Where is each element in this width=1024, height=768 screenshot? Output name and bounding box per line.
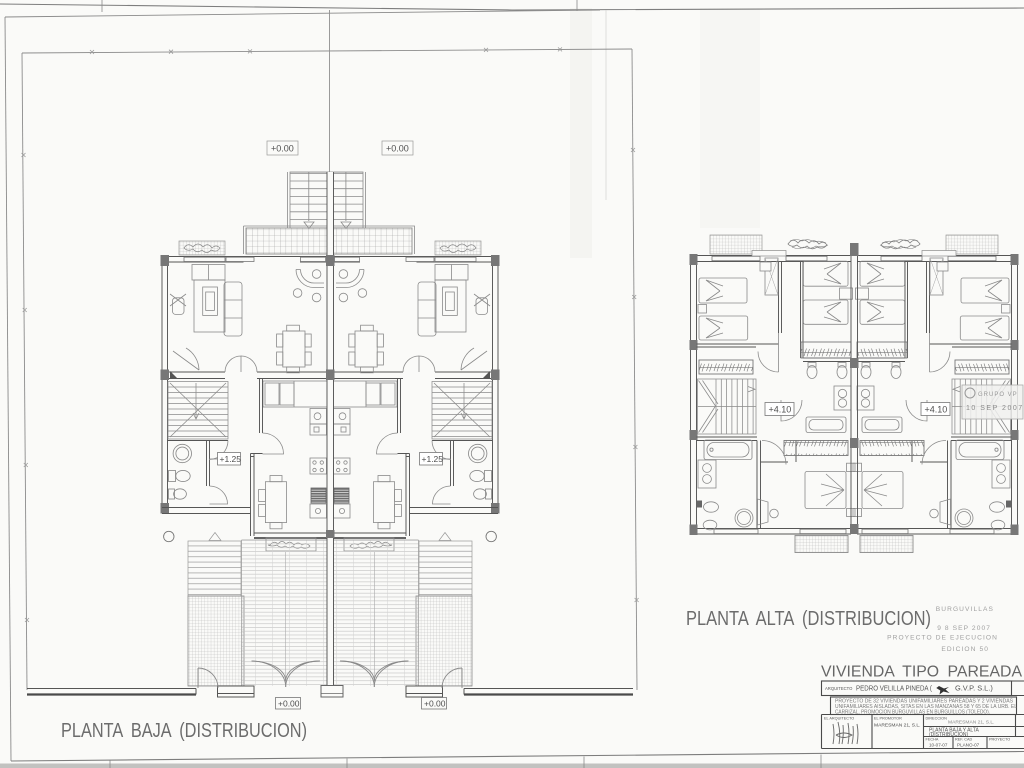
svg-text:+0.00: +0.00 (424, 699, 446, 709)
svg-text:FECHA: FECHA (926, 738, 939, 742)
svg-text:10 SEP 2007: 10 SEP 2007 (966, 405, 1024, 412)
svg-text:PEDRO VELILLA PINEDA (: PEDRO VELILLA PINEDA ( (856, 684, 932, 693)
svg-text:PROYECTO: PROYECTO (989, 738, 1010, 742)
svg-text:EDICION 50: EDICION 50 (941, 646, 989, 653)
svg-text:BURGUVILLAS: BURGUVILLAS (936, 606, 994, 613)
svg-text:+1.25: +1.25 (422, 454, 444, 464)
svg-text:GRUPO VP: GRUPO VP (978, 392, 1018, 398)
svg-text:PLANO-07: PLANO-07 (957, 743, 980, 748)
svg-text:+0.00: +0.00 (386, 144, 409, 154)
svg-text:PLANTA ALTA (DISTRIBUCION): PLANTA ALTA (DISTRIBUCION) (686, 607, 931, 630)
svg-text:MARESMAN 21, S.L.: MARESMAN 21, S.L. (948, 720, 994, 726)
svg-text:PROYECTO DE EJECUCION: PROYECTO DE EJECUCION (887, 635, 998, 642)
svg-text:+0.00: +0.00 (278, 699, 300, 709)
svg-text:G.V.P. S.L.): G.V.P. S.L.) (955, 684, 993, 693)
svg-text:+4.10: +4.10 (925, 405, 948, 415)
svg-text:DIRECCION: DIRECCION (926, 717, 948, 721)
svg-text:ARQUITECTO: ARQUITECTO (825, 686, 853, 691)
svg-text:VIVIENDA TIPO PAREADA: VIVIENDA TIPO PAREADA (821, 664, 1023, 681)
svg-text:MARESMAN 21, S.L.: MARESMAN 21, S.L. (874, 723, 920, 729)
svg-text:EL PROMOTOR: EL PROMOTOR (874, 717, 902, 721)
svg-text:EL ARQUITECTO: EL ARQUITECTO (824, 717, 854, 721)
svg-text:PLANTA BAJA (DISTRIBUCION): PLANTA BAJA (DISTRIBUCION) (61, 719, 307, 742)
svg-text:9 8 SEP 2007: 9 8 SEP 2007 (937, 625, 991, 632)
svg-text:+1.25: +1.25 (220, 454, 242, 464)
svg-text:CARRIZAL, PROMOCION BURGUVILLA: CARRIZAL, PROMOCION BURGUVILLAS EN BURGU… (835, 710, 990, 716)
svg-text:+0.00: +0.00 (271, 144, 294, 154)
svg-text:10-07-07: 10-07-07 (929, 743, 948, 748)
svg-text:+4.10: +4.10 (769, 405, 792, 415)
svg-text:REF. CAD: REF. CAD (955, 738, 973, 742)
